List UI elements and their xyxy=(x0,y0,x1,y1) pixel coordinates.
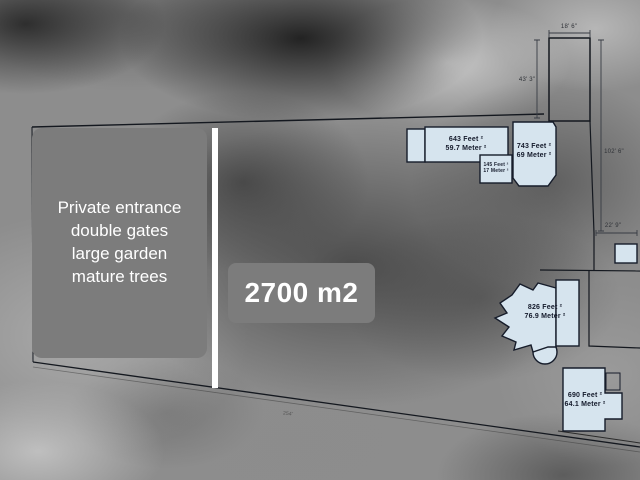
dimension-label-top: 18' 6" xyxy=(561,24,577,30)
dimension-line-right xyxy=(598,40,604,231)
building-fragment-outline xyxy=(615,244,637,263)
courtyard-wall-square xyxy=(606,373,620,390)
feature-line-4: mature trees xyxy=(72,266,167,289)
building-690-label: 690 Feet ² 64.1 Meter ² xyxy=(565,391,606,409)
dimension-label-corner: 22' 9" xyxy=(605,223,621,229)
boundary-line-right xyxy=(590,121,594,270)
boundary-line-top xyxy=(32,114,544,127)
building-643-meter: 59.7 Meter ² xyxy=(446,144,487,153)
building-743-feet: 743 Feet ² xyxy=(517,142,552,151)
feature-line-2: double gates xyxy=(71,220,168,243)
dimension-label-bottom: 254' xyxy=(283,410,294,417)
building-690-meter: 64.1 Meter ² xyxy=(565,400,606,409)
building-annex-outline xyxy=(407,129,425,162)
building-743-label: 743 Feet ² 69 Meter ² xyxy=(517,142,552,160)
building-643-feet: 643 Feet ² xyxy=(446,135,487,144)
building-145-label: 145 Feet ² 17 Meter ² xyxy=(483,162,508,175)
feature-text-box: Private entrance double gates large gard… xyxy=(32,128,207,358)
building-743-meter: 69 Meter ² xyxy=(517,151,552,160)
building-826-feet: 826 Feet ² xyxy=(525,303,566,312)
outlined-strip xyxy=(549,38,590,121)
boundary-line-bottom-secondary xyxy=(33,367,640,452)
dimension-line-top xyxy=(549,30,590,37)
building-643-label: 643 Feet ² 59.7 Meter ² xyxy=(446,135,487,153)
dimension-label-right: 102' 6" xyxy=(604,149,624,155)
white-divider-line xyxy=(212,128,218,388)
building-826-meter: 76.9 Meter ² xyxy=(525,312,566,321)
plot-area-box: 2700 m2 xyxy=(228,263,375,323)
building-145-meter: 17 Meter ² xyxy=(483,168,508,174)
garden-wall-upper xyxy=(540,270,640,271)
plot-area-label: 2700 m2 xyxy=(244,277,358,309)
feature-line-1: Private entrance xyxy=(58,197,182,220)
garden-wall-middle xyxy=(589,271,640,348)
property-listing-plan: 643 Feet ² 59.7 Meter ² 145 Feet ² 17 Me… xyxy=(0,0,640,480)
boundary-line-bottom xyxy=(33,362,640,447)
dimension-label-left: 43' 3" xyxy=(519,77,535,83)
feature-line-3: large garden xyxy=(72,243,167,266)
building-826-label: 826 Feet ² 76.9 Meter ² xyxy=(525,303,566,321)
building-690-feet: 690 Feet ² xyxy=(565,391,606,400)
